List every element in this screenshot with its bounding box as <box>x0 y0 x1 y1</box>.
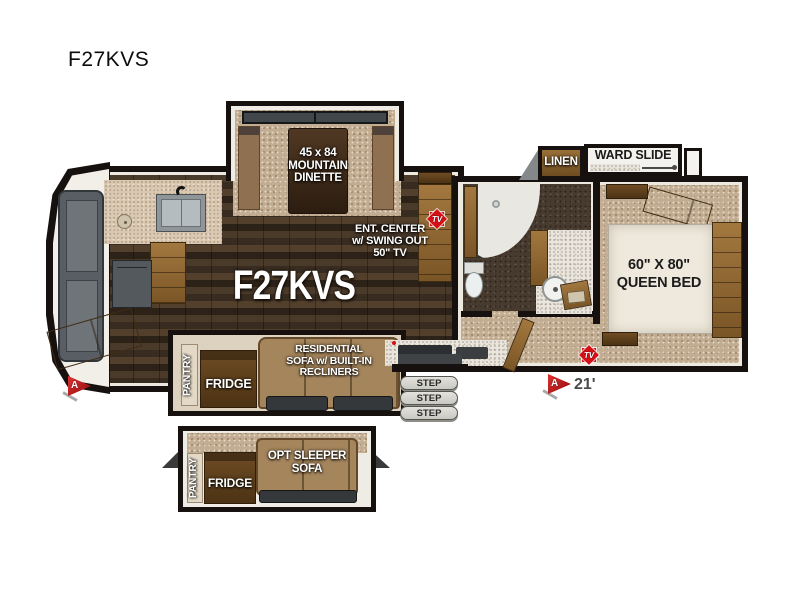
inset-sofa-footrest <box>259 490 357 503</box>
bathroom-shelf <box>560 280 592 310</box>
bathroom-door-gap <box>492 311 518 317</box>
vanity-cabinet <box>530 230 548 286</box>
sofa-label: RESIDENTIAL SOFA w/ BUILT-IN RECLINERS <box>262 344 396 379</box>
bedroom-dresser <box>606 184 648 199</box>
toilet <box>465 272 483 298</box>
floorplan-page: F27KVS 45 x 84 MOUNTAIN DINETTE <box>0 0 800 600</box>
dinette-bench-right <box>372 126 394 210</box>
awning-flag-icon: A <box>548 374 571 394</box>
tv-star-icon: TV <box>428 210 446 228</box>
page-title: F27KVS <box>68 48 149 72</box>
front-window-pane <box>66 200 98 272</box>
bed-headboard-wardrobe <box>712 222 742 338</box>
sofa-footrest <box>266 396 328 411</box>
pantry-label: PANTRY <box>182 346 197 404</box>
bathroom-cabinet <box>464 186 477 258</box>
fridge-label: FRIDGE <box>200 378 257 392</box>
bed-foot-bench <box>602 332 638 346</box>
entry-step: STEP <box>400 391 458 405</box>
inset-fridge-label: FRIDGE <box>204 477 256 490</box>
rear-cap <box>684 148 702 178</box>
kitchen-sink <box>156 194 206 232</box>
entry-step: STEP <box>400 376 458 390</box>
ent-center-upper-cabinet <box>418 172 452 184</box>
entry-wall-band <box>392 364 468 372</box>
tv-star-icon: TV <box>580 346 598 364</box>
inset-pantry-label: PANTRY <box>188 454 202 502</box>
floor-model-text: F27KVS <box>227 262 361 308</box>
ent-center-label: ENT. CENTER w/ SWING OUT 50" TV <box>336 223 444 259</box>
dinette-label: 45 x 84 MOUNTAIN DINETTE <box>270 147 366 185</box>
sofa-footrest <box>333 396 393 411</box>
ward-slide-label: WARD SLIDE <box>588 149 678 163</box>
opt-sleeper-sofa-label: OPT SLEEPER SOFA <box>256 450 358 475</box>
awning-flag-icon: A <box>68 376 91 396</box>
dinette-bench-left <box>238 126 260 210</box>
bedroom-divider-wall <box>593 180 600 324</box>
queen-bed-label: 60" X 80" QUEEN BED <box>606 256 712 292</box>
linen-closet: LINEN <box>538 146 584 180</box>
dinette-window <box>242 111 388 124</box>
marker-dot <box>392 341 396 345</box>
length-label: 21' <box>574 376 596 394</box>
entry-step: STEP <box>400 406 458 420</box>
countertop-round-item <box>117 214 132 229</box>
kitchen-cabinet <box>150 242 186 304</box>
range-oven <box>112 260 152 308</box>
linen-label: LINEN <box>538 156 584 169</box>
faucet-icon <box>176 186 187 197</box>
ward-slide: WARD SLIDE <box>584 144 682 176</box>
